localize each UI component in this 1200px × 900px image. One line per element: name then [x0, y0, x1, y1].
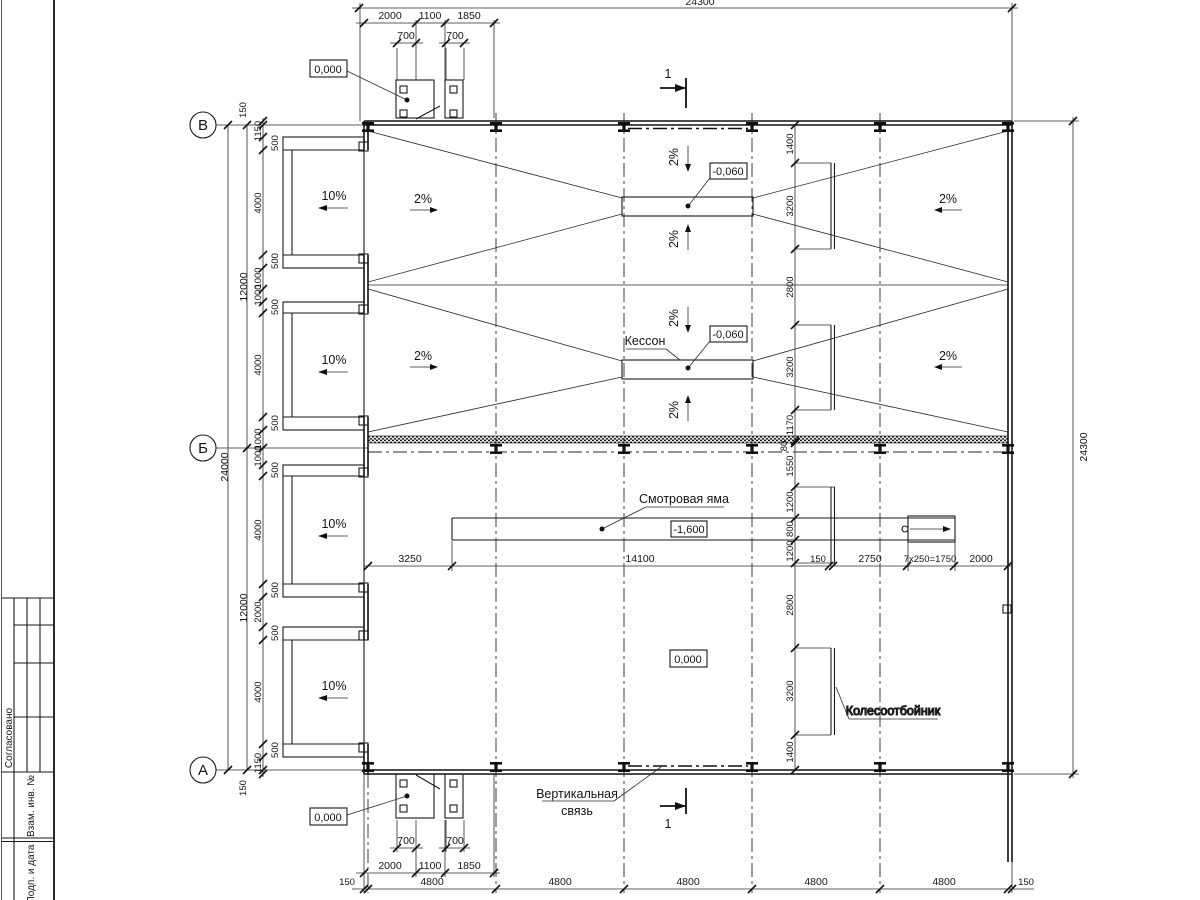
floor-slope-right-2: 2% [934, 349, 962, 370]
svg-text:700: 700 [446, 30, 464, 42]
title-block-repl-inv: Взам. инв. № [26, 775, 37, 837]
grate-slope-down-1: 2% [667, 146, 691, 172]
svg-text:1200: 1200 [785, 491, 796, 512]
axis-b-strip [368, 436, 1008, 443]
section-number-bottom: 1 [665, 817, 672, 831]
svg-text:1150: 1150 [253, 121, 264, 141]
svg-text:2800: 2800 [785, 276, 796, 297]
svg-text:2%: 2% [667, 309, 681, 327]
dim-total-width: 24300 [685, 0, 714, 8]
slope-labels: 10% 10% 10% 10% 2% 2% 2% 2% 2% 2% 2% 2% [318, 146, 962, 701]
wheel-stop-note: Колесоотбойник [836, 687, 941, 719]
svg-text:150: 150 [238, 102, 249, 118]
svg-text:2%: 2% [939, 349, 957, 363]
svg-text:4800: 4800 [804, 876, 828, 888]
svg-text:3250: 3250 [398, 553, 422, 565]
grid-lines [216, 113, 1008, 893]
svg-text:2%: 2% [667, 148, 681, 166]
svg-text:1000: 1000 [253, 445, 264, 466]
svg-text:3200: 3200 [785, 356, 796, 377]
svg-text:1850: 1850 [457, 860, 481, 872]
svg-text:10%: 10% [321, 353, 346, 367]
pit-label: Смотровая яма [639, 492, 729, 506]
title-block-agreed: Согласовано [4, 708, 15, 769]
svg-text:12000: 12000 [238, 272, 250, 301]
hall-floor-level: 0,000 [670, 650, 707, 667]
ramp-slope-4: 10% [318, 679, 348, 701]
drawing-sheet: Согласовано Взам. инв. № Подп. и дата В … [0, 0, 1200, 900]
svg-text:1100: 1100 [419, 10, 442, 22]
svg-text:1400: 1400 [785, 133, 796, 154]
level-zero-hall: 0,000 [674, 654, 702, 666]
vertical-braces: Вертикальная связь [536, 129, 748, 819]
dimension-labels: 24300 2000 1100 1850 700 700 24300 24000… [219, 0, 1090, 888]
level-zero-top: 0,000 [314, 64, 342, 76]
level-minus1600: -1,600 [673, 524, 704, 536]
svg-text:700: 700 [446, 835, 464, 847]
floor-slope-left-2: 2% [410, 349, 438, 370]
svg-text:500: 500 [270, 135, 281, 151]
svg-text:4000: 4000 [253, 192, 264, 213]
gate-landing-3 [283, 465, 364, 597]
svg-text:700: 700 [397, 835, 415, 847]
floor-slope-right-1: 2% [934, 192, 962, 213]
dim-left-total: 24000 [219, 452, 231, 481]
svg-text:80: 80 [779, 441, 790, 452]
svg-text:4800: 4800 [932, 876, 956, 888]
svg-text:150: 150 [238, 780, 249, 796]
axis-label-v: В [198, 117, 208, 134]
svg-text:2%: 2% [667, 230, 681, 248]
svg-text:14100: 14100 [625, 553, 654, 565]
svg-text:500: 500 [270, 625, 281, 641]
svg-text:500: 500 [270, 462, 281, 478]
wheel-stop-label: Колесоотбойник [846, 704, 941, 718]
svg-text:2000: 2000 [969, 553, 993, 565]
floor-slope-left-1: 2% [410, 192, 438, 213]
svg-text:1170: 1170 [785, 415, 796, 435]
svg-text:500: 500 [270, 253, 281, 269]
svg-text:1850: 1850 [457, 10, 481, 22]
svg-text:2800: 2800 [785, 594, 796, 615]
section-mark-top: 1 [660, 67, 686, 108]
level-zero-bottom: 0,000 [314, 812, 342, 824]
svg-text:4000: 4000 [253, 354, 264, 375]
svg-text:700: 700 [397, 30, 415, 42]
gate-landings [283, 137, 364, 757]
grate-slope-down-2: 2% [667, 307, 691, 333]
svg-text:4800: 4800 [420, 876, 444, 888]
column-ibeams [362, 122, 1014, 772]
title-block: Согласовано Взам. инв. № Подп. и дата [2, 0, 55, 900]
axis-markers: В Б А [190, 112, 216, 783]
caisson-label: Кессон [625, 334, 666, 348]
svg-text:1150: 1150 [253, 753, 264, 773]
svg-text:3200: 3200 [785, 680, 796, 701]
svg-text:500: 500 [270, 299, 281, 315]
svg-text:1550: 1550 [785, 455, 796, 476]
svg-text:500: 500 [270, 742, 281, 758]
axis-label-a: А [198, 762, 208, 779]
svg-text:4800: 4800 [676, 876, 700, 888]
ramp-slope-3: 10% [318, 517, 348, 539]
svg-text:2000: 2000 [378, 10, 402, 22]
svg-text:4800: 4800 [548, 876, 572, 888]
svg-text:2000: 2000 [253, 601, 264, 622]
dim-stair-run: 7x250=1750 [904, 554, 957, 565]
axis-label-b: Б [198, 440, 208, 457]
grate-slope-up-2: 2% [667, 395, 691, 421]
brace-label-line1: Вертикальная [536, 787, 618, 801]
svg-text:150: 150 [810, 554, 826, 565]
title-block-sign-date: Подп. и дата [26, 844, 37, 900]
dim-total-height: 24300 [1078, 432, 1090, 461]
level-minus060-2: -0,060 [712, 329, 743, 341]
svg-text:2%: 2% [667, 401, 681, 419]
grate-slope-up-1: 2% [667, 224, 691, 250]
svg-text:150: 150 [339, 877, 355, 888]
svg-text:10%: 10% [321, 679, 346, 693]
drawing-canvas: Согласовано Взам. инв. № Подп. и дата В … [0, 0, 1200, 900]
svg-text:3200: 3200 [785, 195, 796, 216]
level-minus060-1: -0,060 [712, 166, 743, 178]
svg-text:800: 800 [785, 521, 796, 537]
slope-lines [368, 131, 1008, 432]
svg-text:1400: 1400 [785, 741, 796, 762]
svg-text:4000: 4000 [253, 519, 264, 540]
svg-text:1200: 1200 [785, 540, 796, 561]
svg-text:2000: 2000 [378, 860, 402, 872]
svg-text:1000: 1000 [253, 284, 264, 305]
svg-text:2%: 2% [414, 349, 432, 363]
svg-text:10%: 10% [321, 517, 346, 531]
svg-text:150: 150 [1018, 877, 1034, 888]
svg-text:500: 500 [270, 582, 281, 598]
ramp-slope-1: 10% [318, 189, 348, 211]
drain-grates: -0,060 -0,060 Кессон [622, 163, 753, 379]
svg-text:2%: 2% [939, 192, 957, 206]
svg-text:500: 500 [270, 415, 281, 431]
svg-text:2750: 2750 [858, 553, 882, 565]
svg-text:2%: 2% [414, 192, 432, 206]
svg-text:1100: 1100 [419, 860, 442, 872]
brace-label-line2: связь [561, 804, 593, 818]
section-mark-bottom: 1 [660, 788, 686, 831]
ramp-slope-2: 10% [318, 353, 348, 375]
section-number-top: 1 [665, 67, 672, 81]
svg-text:10%: 10% [321, 189, 346, 203]
svg-text:4000: 4000 [253, 681, 264, 702]
svg-text:12000: 12000 [238, 593, 250, 622]
bottom-entry-pads: 0,000 [310, 774, 463, 825]
